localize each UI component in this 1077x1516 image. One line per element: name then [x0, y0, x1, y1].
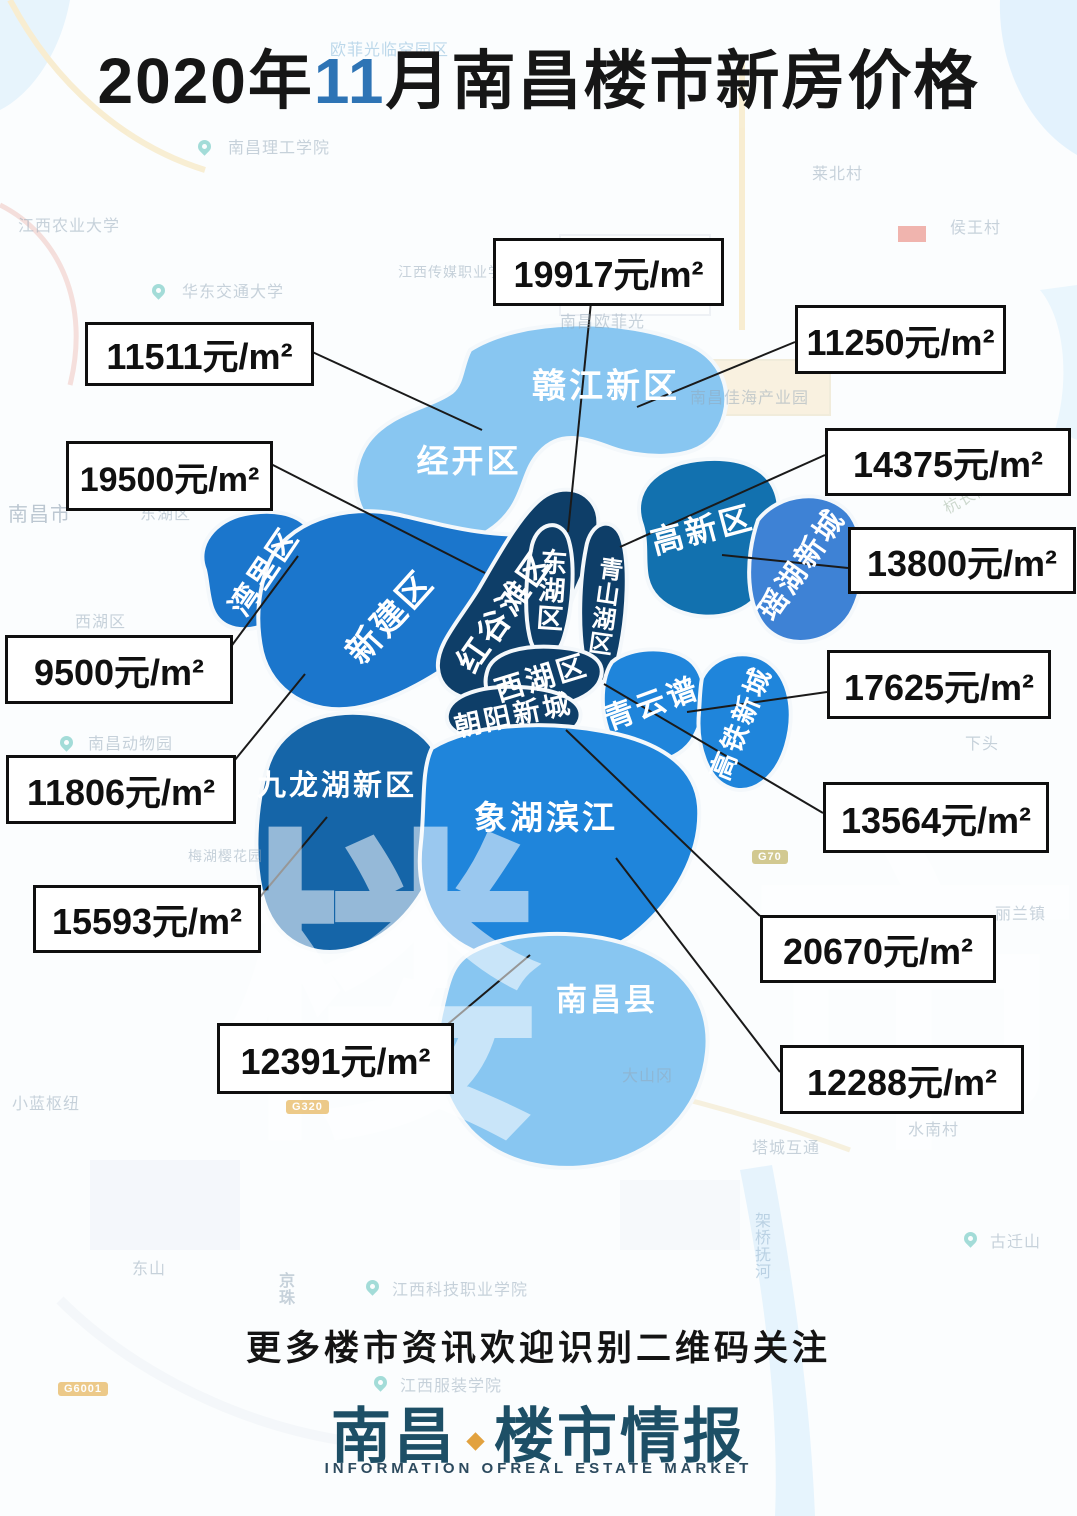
basemap-label: 塔城互通 [752, 1134, 820, 1158]
title-month-highlight: 11 [314, 45, 386, 117]
basemap-label: 南昌市 [8, 498, 71, 527]
footer-cta-text: 更多楼市资讯欢迎识别二维码关注 [0, 1320, 1077, 1371]
price-label-donghuqu: 19917元/m² [493, 238, 724, 306]
basemap-label: 小蓝枢纽 [12, 1090, 80, 1114]
basemap-label: 南昌理工学院 [228, 134, 330, 158]
basemap-label: 架桥抚河 [748, 1212, 772, 1280]
price-label-jingkaiqu: 11511元/m² [85, 322, 314, 386]
price-label-jiulonghuxinqu: 15593元/m² [33, 885, 261, 953]
price-label-wanliqu: 9500元/m² [5, 635, 233, 704]
basemap-label: 京珠 [272, 1272, 296, 1306]
brand-subtitle: INFORMATION OFREAL ESTATE MARKET [0, 1460, 1077, 1477]
basemap-label: 水南村 [908, 1116, 959, 1140]
basemap-label: 侯王村 [950, 214, 1001, 238]
price-label-qingyunpu: 17625元/m² [827, 650, 1051, 719]
title-suffix: 月南昌楼市新房价格 [386, 45, 980, 117]
price-label-nanchangxian: 12391元/m² [217, 1023, 454, 1094]
region-shape-nanchangxian [438, 934, 708, 1168]
price-label-qingshanhuqu: 14375元/m² [825, 428, 1071, 496]
region-label-xianghubinjiang: 象湖滨江 [474, 791, 618, 839]
basemap-label: 南昌欧菲光 [560, 308, 645, 332]
basemap-label: 莱北村 [812, 160, 863, 184]
diamond-icon [466, 1432, 484, 1450]
basemap-label: 南昌佳海产业园 [690, 384, 809, 408]
price-label-xihuqu: 13564元/m² [823, 782, 1049, 853]
region-shape-xianghubinjiang [420, 725, 699, 964]
road-badge: G320 [286, 1100, 329, 1114]
price-label-xianghubinjiang: 12288元/m² [780, 1045, 1024, 1114]
region-shape-jiulonghuxinqu [256, 713, 447, 952]
basemap-label: 丽兰镇 [995, 900, 1046, 924]
region-label-donghuqu: 东湖区 [528, 547, 573, 634]
infographic-poster: 楼 市 欧菲光临空园区 南昌理工学院 江西农业大学 华东交通大学 江西传媒职业学… [0, 0, 1077, 1516]
basemap-label: 江西科技职业学院 [392, 1276, 528, 1300]
basemap-label: 大山冈 [622, 1062, 673, 1086]
road-badge: G70 [752, 850, 788, 864]
price-label-ganjiangxinqu: 11250元/m² [795, 305, 1006, 374]
price-label-gaoxinqu: 13800元/m² [848, 527, 1076, 594]
title-prefix: 2020年 [97, 45, 313, 117]
price-label-xinjianqu: 11806元/m² [6, 755, 236, 824]
price-label-chaoyangxincheng: 20670元/m² [760, 915, 996, 983]
page-title: 2020年11月南昌楼市新房价格 [0, 30, 1077, 122]
region-label-nanchangxian: 南昌县 [556, 975, 658, 1020]
basemap-label: 下头 [965, 730, 999, 754]
basemap-label: 梅湖樱花园 [188, 846, 263, 866]
basemap-label: 江西农业大学 [18, 212, 120, 236]
basemap-label: 东山 [132, 1255, 166, 1279]
basemap-label: 华东交通大学 [182, 278, 284, 302]
price-label-honggutanqu: 19500元/m² [66, 441, 273, 511]
basemap-label: 南昌动物园 [88, 730, 173, 754]
region-label-jiulonghuxinqu: 九龙湖新区 [257, 762, 417, 804]
basemap-label: 西湖区 [75, 608, 126, 632]
basemap-label: 古迁山 [990, 1228, 1041, 1252]
region-label-ganjiangxinqu: 赣江新区 [532, 359, 680, 408]
region-label-jingkaiqu: 经开区 [416, 436, 521, 482]
